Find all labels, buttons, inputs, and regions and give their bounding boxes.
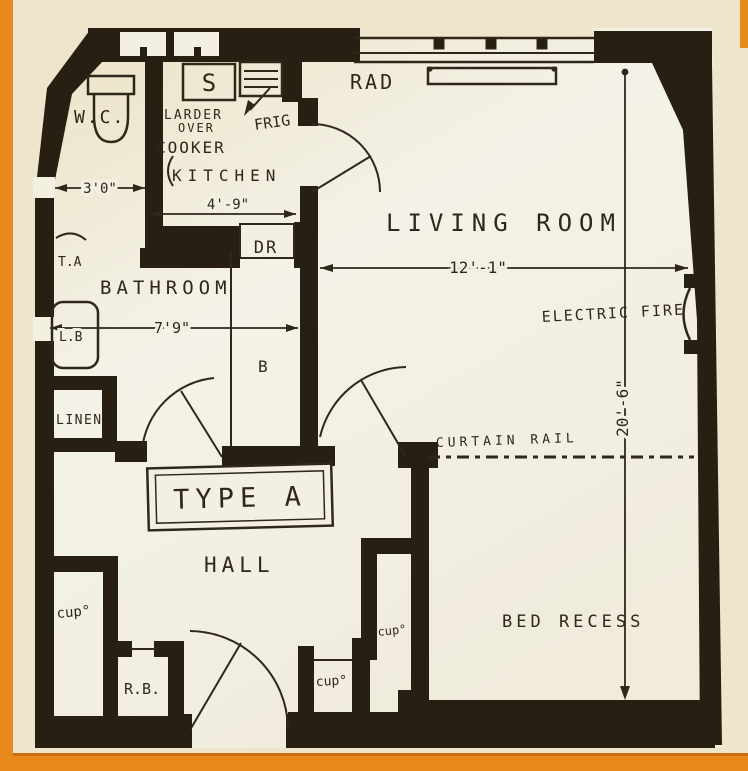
- door-jamb: [154, 641, 168, 657]
- room-label-linen: LINEN: [56, 413, 103, 428]
- dim-label-living-length: 20'-6": [613, 379, 632, 437]
- dim-label-bathroom-width: 7'9": [154, 319, 190, 337]
- room-label-living: LIVING ROOM: [386, 209, 622, 237]
- room-label-bathroom: BATHROOM: [100, 277, 232, 299]
- wall-segment: [288, 712, 415, 748]
- wall-segment: [411, 468, 429, 708]
- fixture-label-towel-airer: T.A: [58, 255, 82, 270]
- dim-label-living-width: 12'-1": [449, 258, 507, 277]
- room-label-bed-recess: BED RECESS: [502, 612, 644, 632]
- refuse-bin-label: R.B.: [124, 680, 160, 698]
- cupboard-label-left: cup°: [56, 603, 91, 622]
- margin-above-window: [352, 24, 594, 38]
- wall-segment: [140, 248, 240, 268]
- floor-plan-scan: TYPE A W.C. LARDER OVER COOKER KITCHEN S…: [0, 0, 748, 771]
- room-label-wc: W.C.: [74, 107, 125, 128]
- fire-bracket: [684, 274, 700, 288]
- dimension-dot: [622, 69, 629, 76]
- wall-segment: [300, 186, 318, 466]
- plan-title-box: TYPE A: [147, 464, 333, 531]
- room-label-hall: HALL: [204, 553, 275, 577]
- window-mullion: [194, 47, 201, 56]
- wall-segment: [145, 226, 240, 248]
- wall-segment: [103, 556, 118, 720]
- window-mullion: [486, 38, 496, 49]
- window-mullion: [537, 38, 547, 49]
- fixture-label-dresser: DR: [254, 238, 278, 258]
- dim-label-wc-width: 3'0": [83, 181, 117, 197]
- fixture-label-larder2: OVER: [178, 121, 215, 135]
- wall-segment: [594, 31, 712, 63]
- window-mullion: [434, 38, 444, 49]
- dim-label-kitchen-width: 4'-9": [207, 197, 249, 213]
- fixture-label-sink: S: [202, 69, 216, 97]
- fire-bracket: [684, 340, 700, 354]
- door-jamb: [352, 638, 377, 660]
- door-jamb: [118, 641, 132, 657]
- fixture-label-cooker: COOKER: [156, 138, 226, 157]
- radiator-dot: [551, 66, 556, 71]
- orange-strip-top-right: [740, 0, 748, 48]
- door-jamb: [298, 98, 318, 126]
- wall-segment: [48, 438, 117, 452]
- orange-strip-bottom-edge: [0, 753, 748, 756]
- wall-segment: [361, 538, 428, 554]
- window-mullion: [140, 47, 147, 56]
- wall-segment: [35, 716, 190, 748]
- radiator-dot: [427, 66, 432, 71]
- cupboard-label-lower: cup°: [315, 673, 347, 690]
- door-jamb: [170, 714, 192, 748]
- room-label-kitchen: KITCHEN: [172, 166, 281, 185]
- fixture-label-basin: L.B: [59, 330, 83, 345]
- wall-segment: [413, 700, 715, 748]
- window-gap-left-wall: [33, 177, 55, 198]
- wall-segment: [398, 690, 429, 714]
- fixture-label-radiator: RAD: [350, 70, 395, 94]
- plan-title: TYPE A: [173, 481, 307, 515]
- floor-plan-drawing: TYPE A W.C. LARDER OVER COOKER KITCHEN S…: [0, 0, 748, 771]
- fixture-label-bath: B: [258, 357, 268, 376]
- wall-segment: [298, 646, 314, 716]
- wall-segment: [282, 56, 302, 102]
- wall-segment: [352, 660, 370, 716]
- orange-strip-left: [0, 0, 13, 756]
